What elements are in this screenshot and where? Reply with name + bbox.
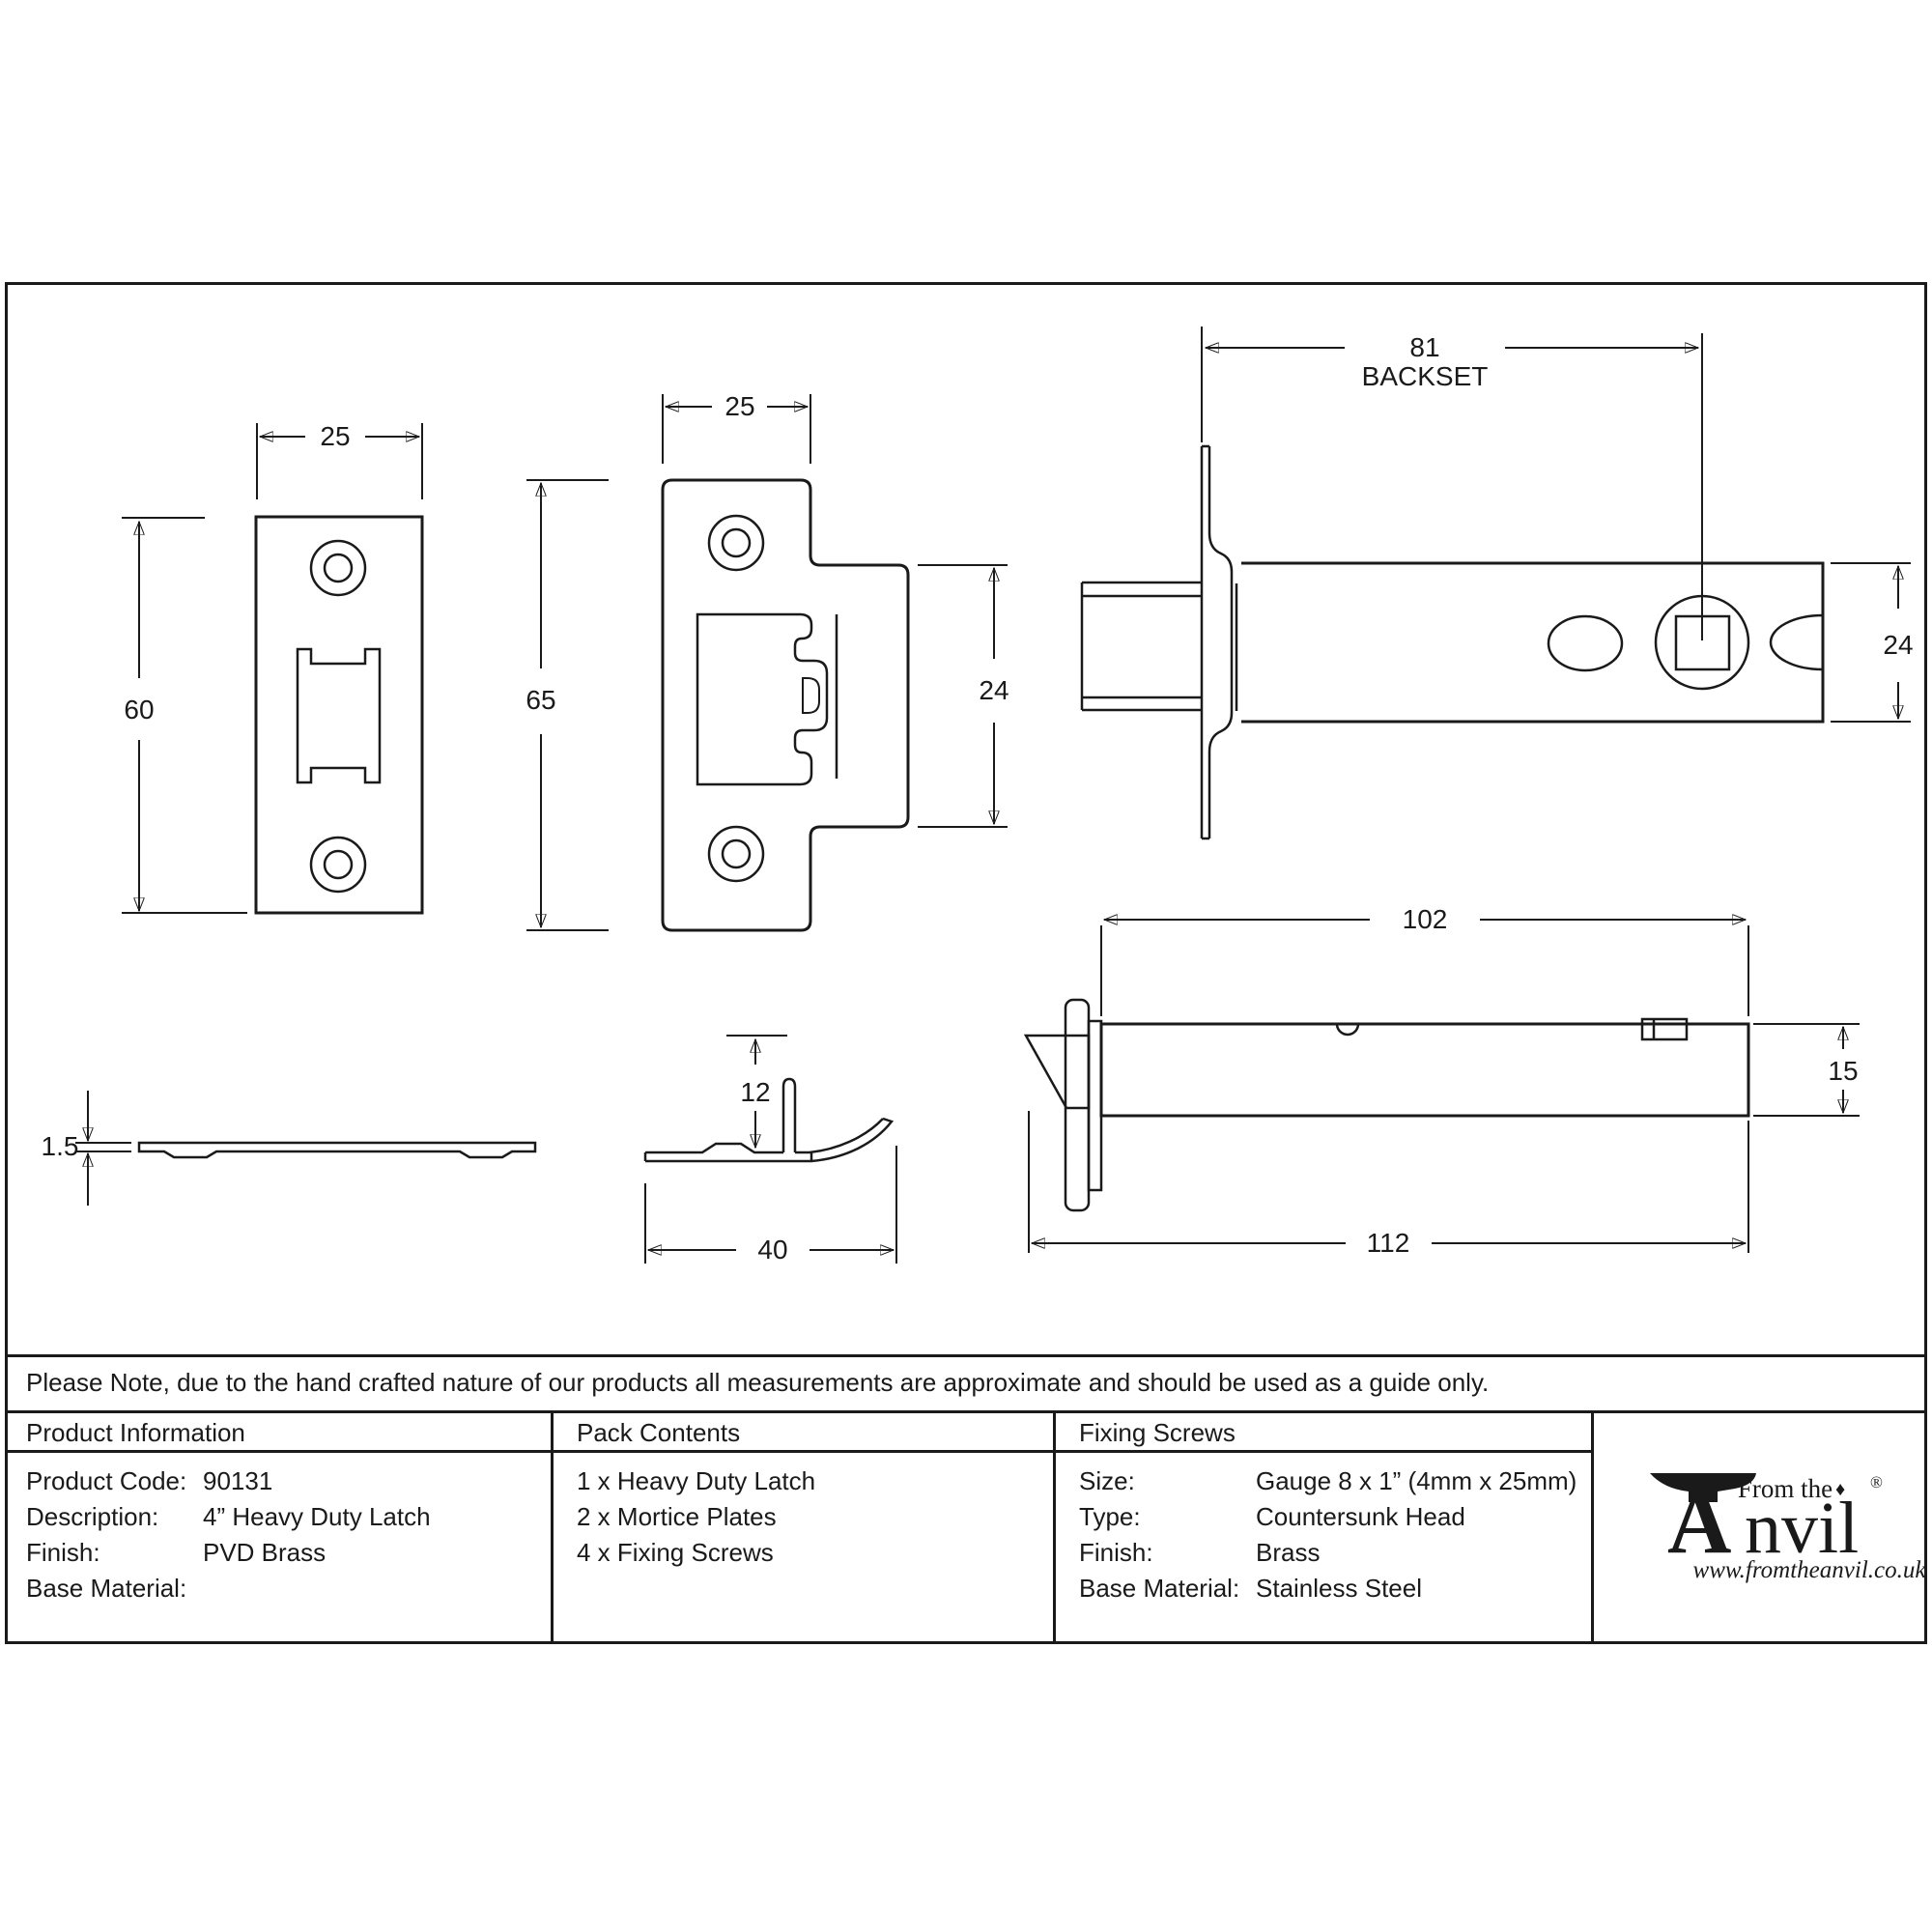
dim-tube-height: 15 [1828,1056,1858,1086]
header-pack-contents: Pack Contents [577,1418,740,1447]
finish-label: Finish: [26,1538,100,1567]
screw-material-label: Base Material: [1079,1574,1239,1603]
drawing-thin-plate-side: 1.5 [42,1091,535,1206]
table-header-rule [5,1450,1594,1453]
drawing-strike-plate-front: 25 60 [122,421,422,913]
anvil-logo-graphic: A From the ♦ ® nvil www.fromtheanvil.co.… [1594,1413,1927,1644]
screw-size-value: Gauge 8 x 1” (4mm x 25mm) [1256,1466,1577,1495]
screw-size-label: Size: [1079,1466,1135,1495]
pack-item: 4 x Fixing Screws [577,1538,774,1567]
product-code-label: Product Code: [26,1466,186,1495]
screw-finish-value: Brass [1256,1538,1320,1567]
dim-latch-body-height: 24 [1883,630,1913,660]
registered-mark: ® [1870,1473,1883,1492]
dim-plate2-tab-height: 24 [979,675,1009,705]
dim-tube-length: 102 [1403,904,1448,934]
anvil-logo: A From the ♦ ® nvil www.fromtheanvil.co.… [1594,1413,1927,1644]
finish-value: PVD Brass [203,1538,326,1567]
drawing-spring-plate-side: 12 40 [645,1036,896,1264]
dim-plate1-height: 60 [124,695,154,724]
dim-plate-thickness: 1.5 [42,1131,79,1161]
description-label: Description: [26,1502,158,1531]
description-value: 4” Heavy Duty Latch [203,1502,431,1531]
dim-plate1-width: 25 [320,421,350,451]
screw-type-label: Type: [1079,1502,1141,1531]
table-divider-1 [551,1410,554,1644]
drawing-tube-latch-side: 102 15 112 [1026,904,1860,1258]
drawing-latch-side: 81 BACKSET 24 [1082,327,1914,838]
header-fixing-screws: Fixing Screws [1079,1418,1236,1447]
base-material-label: Base Material: [26,1574,186,1603]
dim-plate2-height: 65 [526,685,555,715]
drawing-strike-plate-t: 25 65 24 [526,391,1009,930]
spec-sheet-page: 25 60 25 65 [0,0,1932,1932]
dim-spring-plate-length: 40 [757,1235,787,1264]
dim-backset-value: 81 [1409,332,1439,362]
dim-overall-length: 112 [1367,1228,1410,1258]
measurement-note: Please Note, due to the hand crafted nat… [26,1368,1489,1397]
dim-backset-label: BACKSET [1362,361,1489,391]
dim-spring-tab-height: 12 [740,1077,770,1107]
pack-item: 1 x Heavy Duty Latch [577,1466,815,1495]
dim-plate2-width: 25 [724,391,754,421]
product-code-value: 90131 [203,1466,272,1495]
pack-item: 2 x Mortice Plates [577,1502,777,1531]
logo-url: www.fromtheanvil.co.uk [1693,1557,1927,1583]
screw-material-value: Stainless Steel [1256,1574,1422,1603]
screw-type-value: Countersunk Head [1256,1502,1465,1531]
screw-finish-label: Finish: [1079,1538,1153,1567]
header-product-information: Product Information [26,1418,245,1447]
note-row-top-rule [5,1354,1927,1357]
table-divider-2 [1053,1410,1056,1644]
